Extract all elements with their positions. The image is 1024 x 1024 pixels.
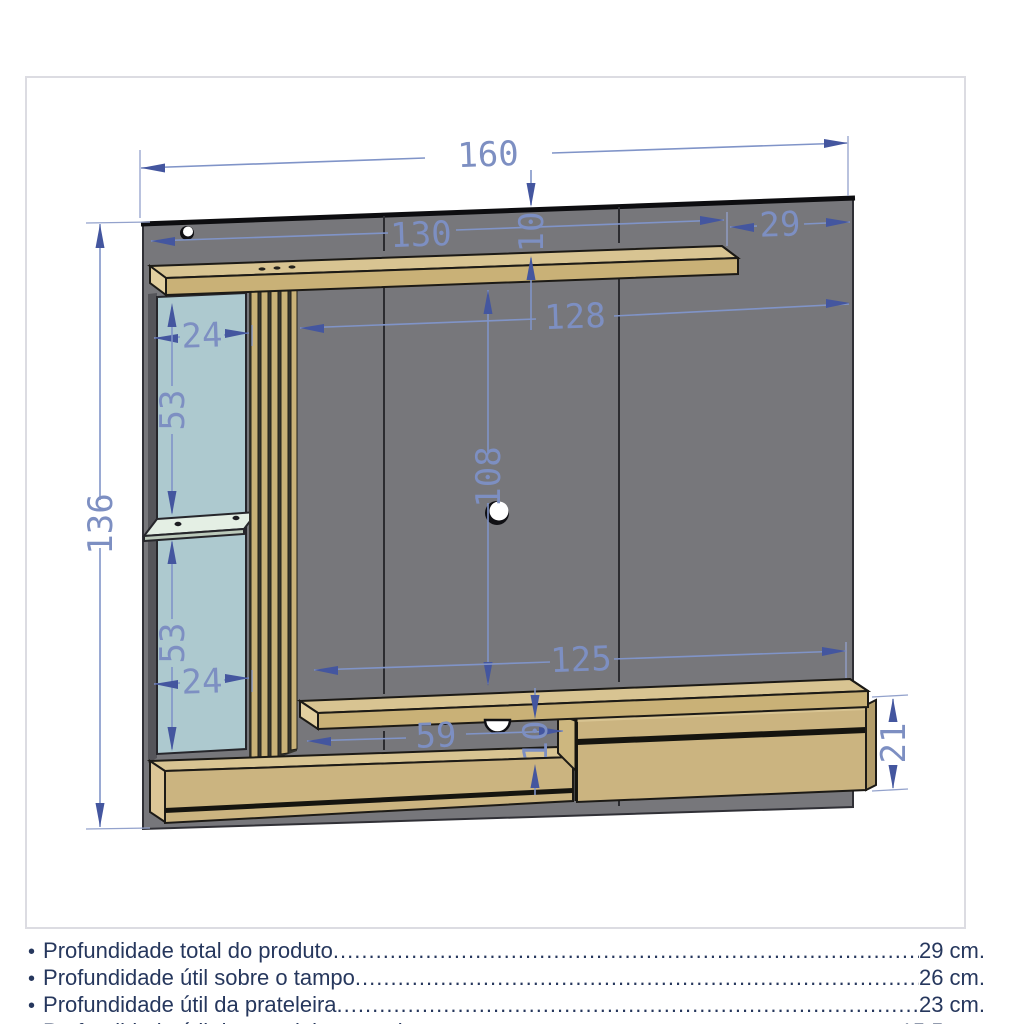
spec-row-shelf-depth: • Profundidade útil da prateleira ......… xyxy=(28,992,985,1019)
dim-label-59: 59 xyxy=(415,715,457,756)
dot-leader: ........................................… xyxy=(355,965,919,991)
dot-leader: ........................................… xyxy=(422,1019,900,1024)
dim-label-136: 136 xyxy=(81,493,121,554)
dim-label-10-bottom: 10 xyxy=(516,721,556,762)
spec-label: Profundidade total do produto xyxy=(43,938,333,964)
dim-label-29: 29 xyxy=(759,204,801,245)
dim-label-128: 128 xyxy=(544,296,607,338)
spec-row-total-depth: • Profundidade total do produto ........… xyxy=(28,938,985,965)
spec-label: Profundidade útil da prateleira xyxy=(43,992,337,1018)
bullet-icon: • xyxy=(28,1020,35,1024)
dim-base-height: 21 xyxy=(872,695,914,791)
dim-label-160: 160 xyxy=(457,134,520,176)
spec-value: 29 cm. xyxy=(919,938,985,964)
dim-label-21: 21 xyxy=(874,723,914,764)
dim-label-130: 130 xyxy=(390,214,453,256)
slat-column xyxy=(249,288,297,768)
spec-row-top-depth: • Profundidade útil sobre o tampo ......… xyxy=(28,965,985,992)
dim-label-24-bottom: 24 xyxy=(181,661,223,702)
keyhole xyxy=(180,226,194,240)
bullet-icon: • xyxy=(28,993,35,1019)
dim-label-24-top: 24 xyxy=(181,315,223,356)
spec-row-top-shelf-depth: • Profundidade útil da prateleira superi… xyxy=(28,1019,985,1024)
spec-label: Profundidade útil sobre o tampo xyxy=(43,965,355,991)
bullet-icon: • xyxy=(28,966,35,992)
spec-label: Profundidade útil da prateleira superior xyxy=(43,1019,422,1024)
bullet-icon: • xyxy=(28,939,35,965)
dim-total-height: 136 xyxy=(81,222,150,829)
spec-value: 15,5 cm. xyxy=(901,1019,985,1024)
spec-value: 26 cm. xyxy=(919,965,985,991)
dim-label-53-lower: 53 xyxy=(153,623,193,664)
dim-label-108: 108 xyxy=(469,446,509,507)
dim-label-10-top: 10 xyxy=(512,212,552,253)
depth-specs-list: • Profundidade total do produto ........… xyxy=(28,938,985,1024)
dim-label-53-upper: 53 xyxy=(153,390,193,431)
dot-leader: ........................................… xyxy=(337,992,919,1018)
dim-label-125: 125 xyxy=(550,639,613,681)
page: 160 136 130 xyxy=(0,0,1024,1024)
dot-leader: ........................................… xyxy=(333,938,919,964)
spec-value: 23 cm. xyxy=(919,992,985,1018)
tv-panel-technical-drawing: 160 136 130 xyxy=(0,0,1024,1024)
